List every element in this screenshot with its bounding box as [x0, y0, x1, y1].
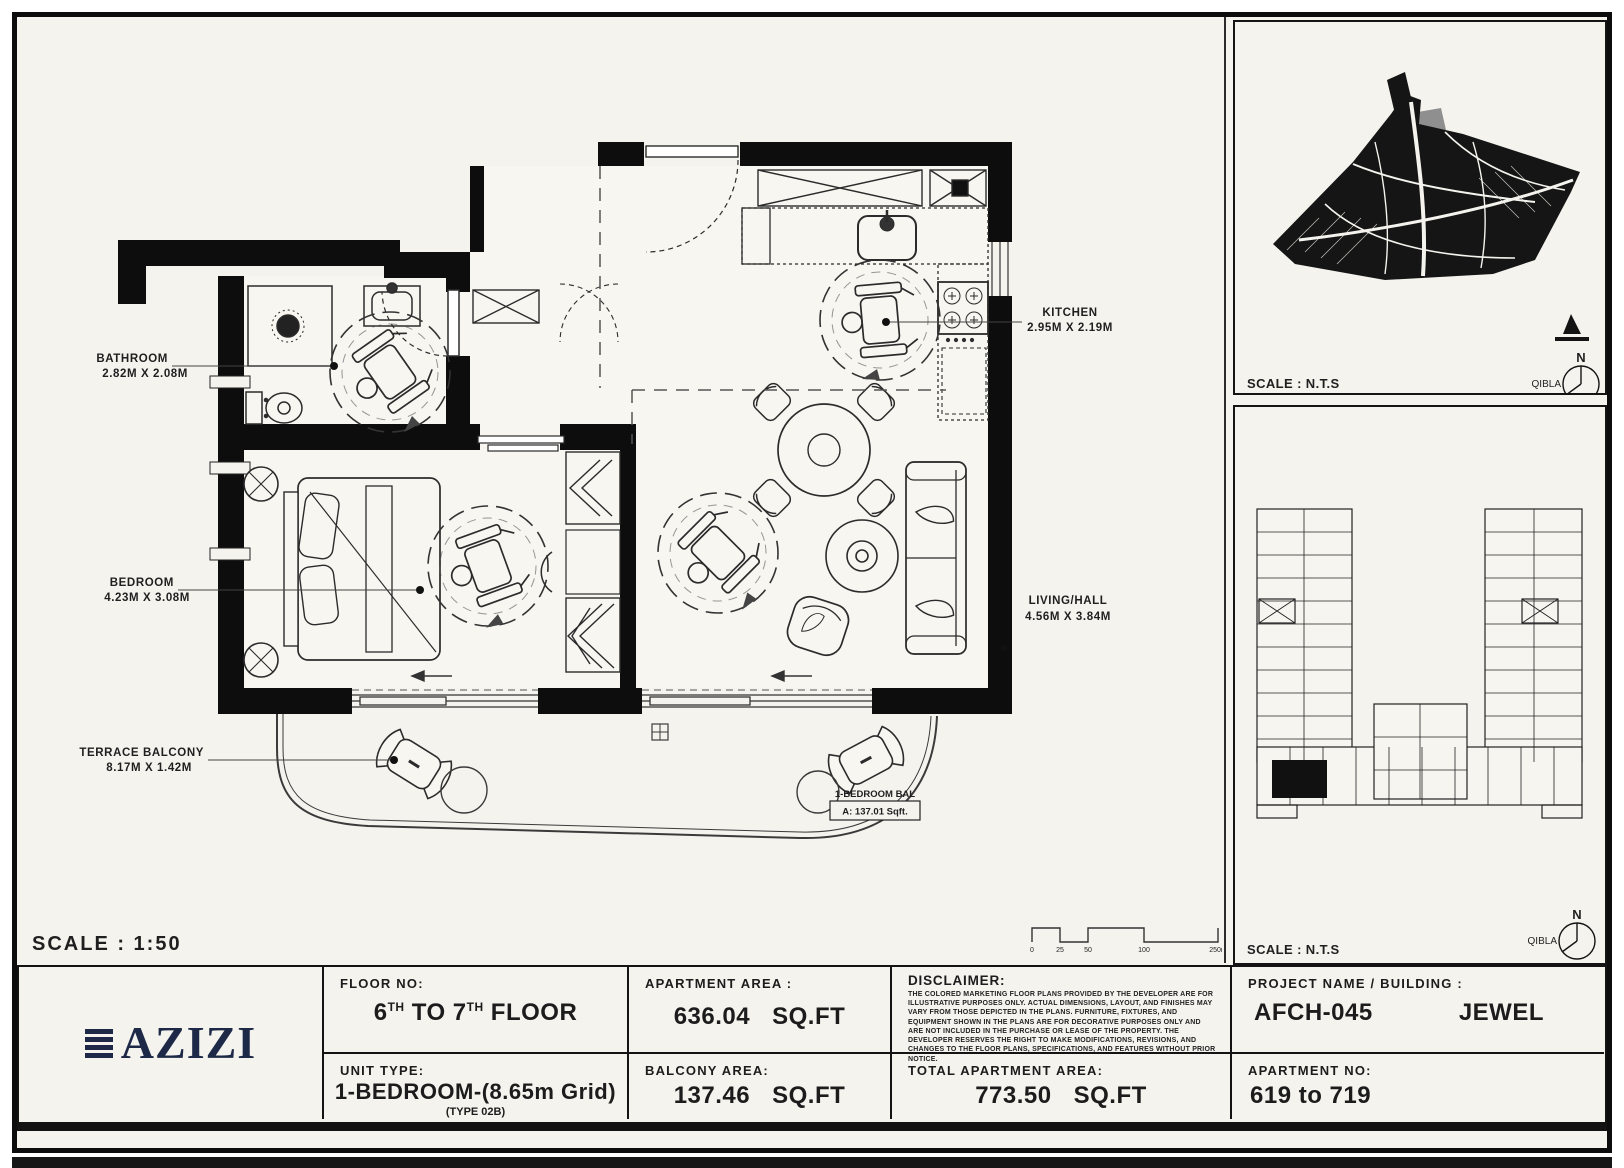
pillow — [299, 564, 340, 626]
apartment-no-cell: APARTMENT NO: 619 to 719 — [1230, 1052, 1604, 1119]
bed — [284, 478, 440, 660]
svg-text:250m: 250m — [1209, 947, 1222, 954]
kitchen-window — [992, 242, 1008, 296]
brand-cell: AZIZI — [19, 967, 322, 1119]
svg-text:4.23M X 3.08M: 4.23M X 3.08M — [104, 592, 190, 604]
entry-door-leaf — [646, 146, 738, 157]
azizi-logo-icon — [85, 1029, 113, 1058]
site-map-panel: N QIBLA SCALE : N.T.S — [1233, 20, 1607, 395]
unit-type-cell: UNIT TYPE: 1-BEDROOM-(8.65m Grid) (TYPE … — [322, 1052, 627, 1119]
svg-text:N: N — [1576, 350, 1585, 365]
svg-text:QIBLA: QIBLA — [1532, 379, 1562, 390]
svg-text:50: 50 — [1084, 947, 1092, 954]
svg-text:TERRACE BALCONY: TERRACE BALCONY — [79, 747, 204, 759]
balcony-area-value: 137.46SQ.FT — [629, 1082, 890, 1110]
svg-text:2.95M X 2.19M: 2.95M X 2.19M — [1027, 322, 1113, 334]
total-area-value: 773.50SQ.FT — [892, 1082, 1230, 1110]
floor-no-cell: FLOOR NO: 6TH TO 7TH FLOOR — [322, 967, 627, 1052]
unit-type-value: 1-BEDROOM-(8.65m Grid) — [324, 1079, 627, 1105]
main-right-divider — [1224, 17, 1226, 963]
balcony-area-cell: BALCONY AREA: 137.46SQ.FT — [627, 1052, 890, 1119]
disclaimer-cell: DISCLAIMER: THE COLORED MARKETING FLOOR … — [890, 967, 1230, 1052]
project-label: PROJECT NAME / BUILDING : — [1232, 967, 1604, 991]
main-scale-label: SCALE : 1:50 — [32, 933, 182, 955]
balcony-area-label: BALCONY AREA: — [629, 1054, 890, 1078]
floor-plan-drawing: 1-BEDROOM BAL A: 137.01 Sqft. — [17, 17, 1222, 963]
svg-text:KITCHEN: KITCHEN — [1042, 307, 1097, 319]
disclaimer-label: DISCLAIMER: — [892, 967, 1230, 988]
svg-text:8.17M X 1.42M: 8.17M X 1.42M — [106, 762, 192, 774]
bathroom-door-leaf — [448, 290, 459, 356]
site-scale-label: SCALE : N.T.S — [1247, 376, 1340, 391]
site-map — [1273, 72, 1580, 280]
north-qibla-compass: N QIBLA — [1532, 350, 1599, 393]
apartment-no-label: APARTMENT NO: — [1232, 1054, 1604, 1078]
unit-type-label: UNIT TYPE: — [324, 1054, 627, 1078]
svg-text:QIBLA: QIBLA — [1528, 936, 1558, 947]
svg-text:N: N — [1572, 907, 1581, 922]
svg-text:BEDROOM: BEDROOM — [110, 577, 174, 589]
brand-name: AZIZI — [121, 1020, 256, 1066]
svg-text:2.82M X 2.08M: 2.82M X 2.08M — [102, 368, 188, 380]
building-key-plan — [1257, 509, 1582, 818]
key-scale-label: SCALE : N.T.S — [1247, 942, 1340, 957]
bedroom-pocket-door — [478, 436, 564, 451]
apartment-area-cell: APARTMENT AREA : 636.04SQ.FT — [627, 967, 890, 1052]
svg-text:LIVING/HALL: LIVING/HALL — [1029, 595, 1108, 607]
floorplan-sheet: 1-BEDROOM BAL A: 137.01 Sqft. — [0, 0, 1624, 1168]
north-qibla-compass: N QIBLA — [1528, 907, 1595, 959]
key-plan-panel: N QIBLA SCALE : N.T.S — [1233, 405, 1607, 965]
total-area-cell: TOTAL APARTMENT AREA: 773.50SQ.FT — [890, 1052, 1230, 1119]
floor-no-value: 6TH TO 7TH FLOOR — [324, 999, 627, 1027]
sofa — [906, 462, 966, 654]
title-block: AZIZI FLOOR NO: 6TH TO 7TH FLOOR UNIT TY… — [17, 965, 1607, 1131]
floor-no-label: FLOOR NO: — [324, 967, 627, 991]
sheet-bottom-band — [12, 1157, 1612, 1168]
total-area-label: TOTAL APARTMENT AREA: — [892, 1054, 1230, 1078]
boat-icon — [1555, 314, 1589, 341]
rug — [826, 520, 898, 592]
svg-text:25: 25 — [1056, 947, 1064, 954]
balcony-area-tag: 1-BEDROOM BAL A: 137.01 Sqft. — [830, 789, 920, 820]
svg-text:0: 0 — [1030, 947, 1034, 954]
svg-text:1-BEDROOM BAL: 1-BEDROOM BAL — [835, 789, 915, 800]
apartment-no-value: 619 to 719 — [1232, 1082, 1604, 1110]
highlighted-unit — [1272, 760, 1327, 798]
svg-text:A: 137.01 Sqft.: A: 137.01 Sqft. — [842, 807, 907, 818]
scale-bar: 0 25 50 100 250m — [1030, 928, 1222, 954]
svg-text:BATHROOM: BATHROOM — [96, 353, 168, 365]
project-value: AFCH-045JEWEL — [1232, 999, 1604, 1027]
project-cell: PROJECT NAME / BUILDING : AFCH-045JEWEL — [1230, 967, 1604, 1052]
apartment-area-label: APARTMENT AREA : — [629, 967, 890, 991]
svg-text:4.56M X 3.84M: 4.56M X 3.84M — [1025, 611, 1111, 623]
svg-text:100: 100 — [1138, 947, 1150, 954]
apartment-area-value: 636.04SQ.FT — [629, 1003, 890, 1031]
unit-type-subvalue: (TYPE 02B) — [324, 1106, 627, 1118]
